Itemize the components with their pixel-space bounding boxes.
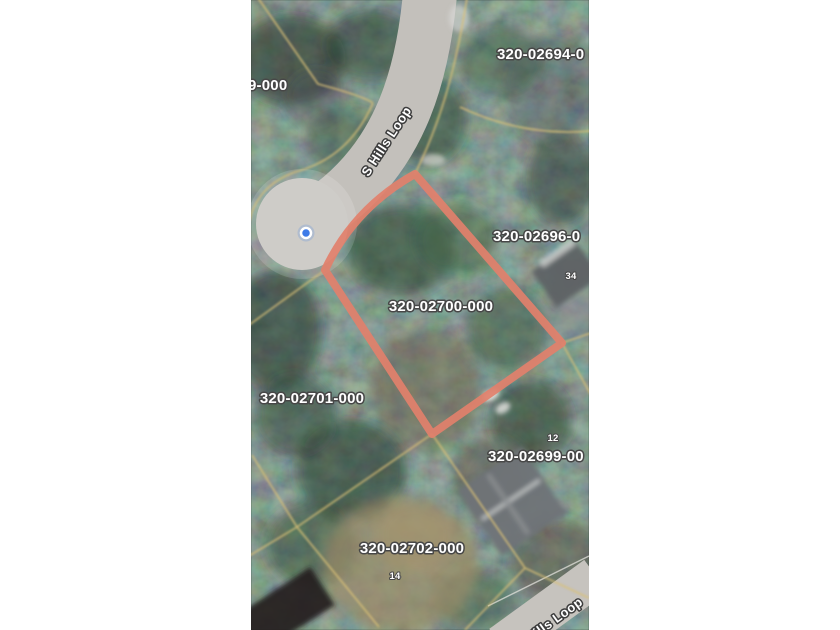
parcel-label-320-02702: 320-02702-000 <box>360 540 464 557</box>
map-canvas[interactable]: 320-02694-0 9-000 320-02696-0 320-02700-… <box>251 0 589 630</box>
house-number-14: 14 <box>390 571 401 582</box>
location-marker <box>298 225 315 242</box>
parcel-label-320-02700: 320-02700-000 <box>389 298 493 315</box>
parcel-label-9-000: 9-000 <box>251 77 287 94</box>
parcel-label-320-02701: 320-02701-000 <box>260 390 364 407</box>
parcel-label-320-02699: 320-02699-00 <box>488 448 584 465</box>
driveway-patch <box>421 154 445 166</box>
cul-de-sac-halo <box>251 169 357 279</box>
screenshot-stage: 320-02694-0 9-000 320-02696-0 320-02700-… <box>0 0 840 630</box>
house-number-34: 34 <box>566 271 577 282</box>
parcel-label-320-02696: 320-02696-0 <box>493 228 580 245</box>
parcel-label-320-02694: 320-02694-0 <box>497 46 584 63</box>
house-number-12: 12 <box>548 433 559 444</box>
satellite-map: 320-02694-0 9-000 320-02696-0 320-02700-… <box>251 0 589 630</box>
location-marker-dot <box>301 228 311 238</box>
